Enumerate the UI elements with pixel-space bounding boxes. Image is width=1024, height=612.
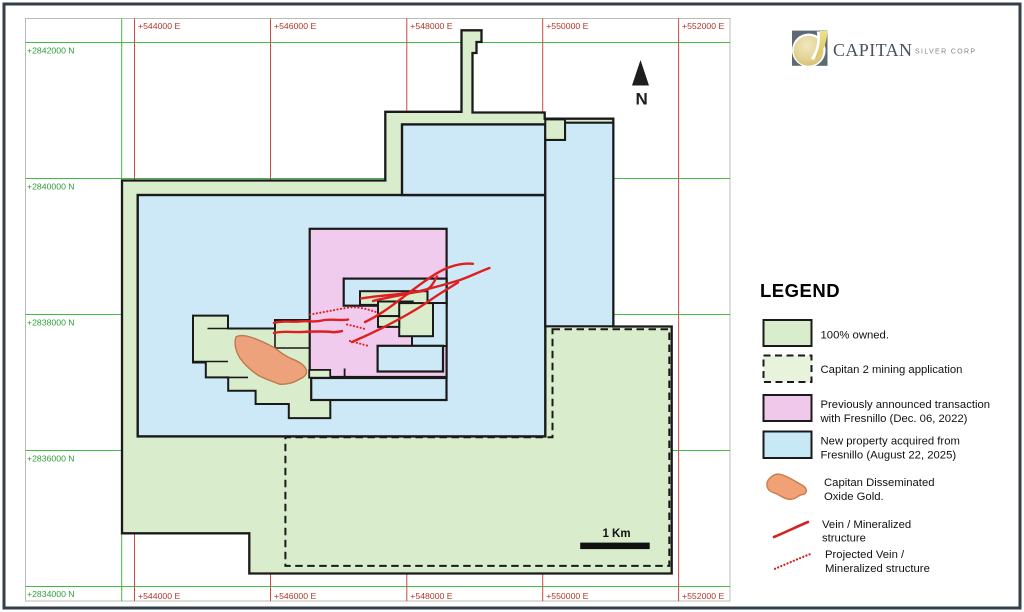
svg-text:Capitan Disseminated: Capitan Disseminated [824, 477, 935, 489]
svg-text:+2842000 N: +2842000 N [27, 46, 75, 56]
svg-text:Fresnillo (August 22, 2025): Fresnillo (August 22, 2025) [821, 450, 957, 462]
svg-text:Oxide Gold.: Oxide Gold. [824, 491, 884, 503]
svg-text:+2840000 N: +2840000 N [27, 182, 75, 192]
svg-text:100% owned.: 100% owned. [821, 330, 889, 342]
svg-text:Capitan 2 mining application: Capitan 2 mining application [821, 364, 963, 376]
svg-text:+552000 E: +552000 E [682, 591, 724, 601]
svg-text:+546000 E: +546000 E [274, 591, 316, 601]
svg-text:SILVER CORP: SILVER CORP [915, 49, 976, 56]
svg-text:1 Km: 1 Km [602, 528, 630, 540]
svg-text:with Fresnillo (Dec. 06, 2022): with Fresnillo (Dec. 06, 2022) [820, 413, 968, 425]
svg-text:+546000 E: +546000 E [274, 21, 316, 31]
svg-text:structure: structure [822, 533, 866, 545]
svg-text:CAPITAN: CAPITAN [833, 40, 912, 60]
svg-text:+2834000 N: +2834000 N [27, 589, 75, 599]
svg-text:+544000 E: +544000 E [138, 21, 180, 31]
svg-text:+544000 E: +544000 E [138, 591, 180, 601]
svg-text:+550000 E: +550000 E [546, 21, 588, 31]
svg-text:+552000 E: +552000 E [682, 21, 724, 31]
svg-text:+548000 E: +548000 E [410, 21, 452, 31]
svg-text:Vein / Mineralized: Vein / Mineralized [822, 519, 911, 531]
svg-text:+2838000 N: +2838000 N [27, 318, 75, 328]
svg-text:Mineralized structure: Mineralized structure [825, 563, 930, 575]
svg-text:Projected Vein /: Projected Vein / [825, 549, 905, 561]
svg-text:LEGEND: LEGEND [760, 280, 840, 301]
svg-text:N: N [636, 89, 648, 108]
svg-text:New property acquired from: New property acquired from [821, 436, 960, 448]
svg-text:+550000 E: +550000 E [546, 591, 588, 601]
svg-text:+2836000 N: +2836000 N [27, 454, 75, 464]
svg-text:+548000 E: +548000 E [410, 591, 452, 601]
svg-text:Previously announced transacti: Previously announced transaction [821, 399, 991, 411]
